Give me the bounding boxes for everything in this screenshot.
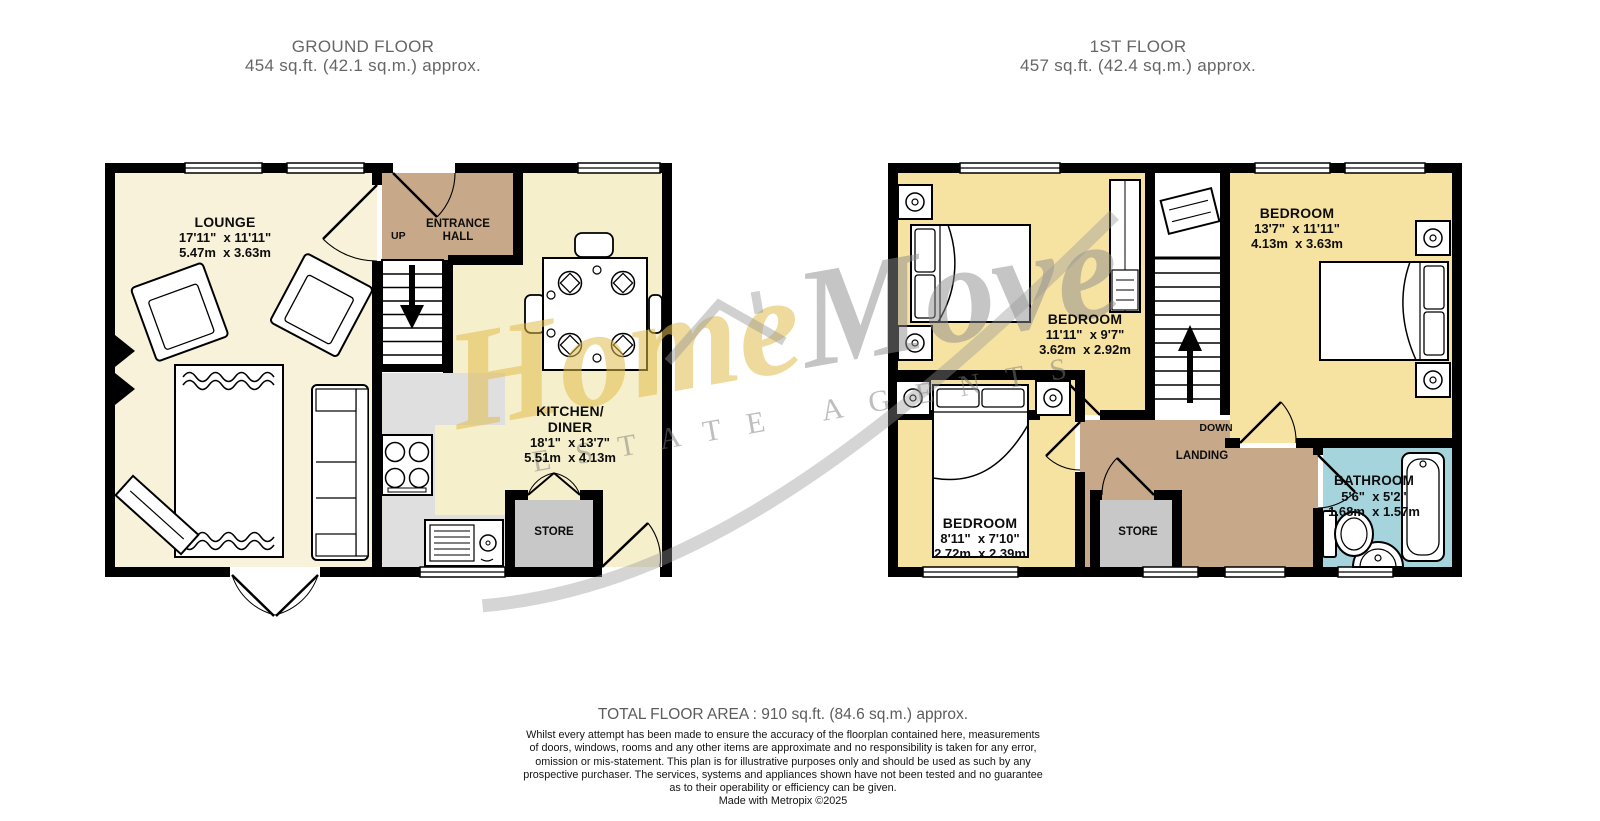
double-bed-icon (1320, 262, 1448, 360)
place-setting-icon (612, 272, 635, 295)
bedroom-small-dims-imperial: 8'11" x 7'10" (905, 531, 1055, 546)
sink-icon (425, 520, 503, 566)
kitchen-dims-metric: 5.51m x 4.13m (490, 450, 650, 465)
place-setting-icon (612, 334, 635, 357)
bedroom-main-dims-imperial: 13'7" x 11'11" (1217, 221, 1377, 236)
kitchen-line1: KITCHEN/ (490, 403, 650, 419)
bathroom-name: BATHROOM (1294, 473, 1454, 489)
nightstand-lamp-icon (1416, 221, 1450, 255)
french-door-opening (230, 567, 320, 577)
first-floor-plan: BEDROOM 13'7" x 11'11" 4.13m x 3.63m BED… (888, 163, 1462, 577)
metropix-credit: Made with Metropix ©2025 (403, 795, 1163, 808)
window (1225, 567, 1285, 577)
disclaimer-line: omission or mis-statement. This plan is … (403, 756, 1163, 769)
bedroom-small-dims-metric: 2.72m x 2.39m (905, 546, 1055, 561)
bedroom-main-label: BEDROOM 13'7" x 11'11" 4.13m x 3.63m (1217, 205, 1377, 251)
window (578, 163, 660, 173)
footer: TOTAL FLOOR AREA : 910 sq.ft. (84.6 sq.m… (403, 705, 1163, 809)
window (420, 567, 505, 577)
nightstand-lamp-icon (898, 326, 932, 360)
bedroom-mid-dims-imperial: 11'11" x 9'7" (1010, 327, 1160, 342)
disclaimer-line: Whilst every attempt has been made to en… (403, 729, 1163, 742)
french-doors (232, 575, 318, 616)
sofa-icon (312, 385, 368, 560)
first-floor-area-text: 457 sq.ft. (42.4 sq.m.) approx. (888, 56, 1388, 75)
up-label: UP (391, 230, 425, 242)
kitchen-door-opening (602, 567, 660, 577)
bedroom-small-label: BEDROOM 8'11" x 7'10" 2.72m x 2.39m (905, 515, 1055, 561)
disclaimer-line: of doors, windows, rooms and any other i… (403, 742, 1163, 755)
first-floor-title: 1ST FLOOR 457 sq.ft. (42.4 sq.m.) approx… (888, 37, 1388, 75)
lounge-name: LOUNGE (140, 214, 310, 230)
bedroom-mid-label: BEDROOM 11'11" x 9'7" 3.62m x 2.92m (1010, 311, 1160, 357)
total-floor-area: TOTAL FLOOR AREA : 910 sq.ft. (84.6 sq.m… (403, 705, 1163, 725)
place-setting-icon (559, 272, 582, 295)
bathroom-dims-metric: 1.68m x 1.57m (1294, 504, 1454, 519)
disclaimer-line: prospective purchaser. The services, sys… (403, 769, 1163, 782)
window (923, 567, 1018, 577)
nightstand-lamp-icon (1416, 363, 1450, 397)
first-store-label: STORE (1098, 526, 1178, 539)
kitchen-label: KITCHEN/ DINER 18'1" x 13'7" 5.51m x 4.1… (490, 403, 650, 465)
landing-label: LANDING (1152, 450, 1252, 463)
ground-floor-title: GROUND FLOOR 454 sq.ft. (42.1 sq.m.) app… (113, 37, 613, 75)
window (1338, 567, 1393, 577)
lounge-dims-imperial: 17'11" x 11'11" (140, 230, 310, 245)
ground-floor-area-text: 454 sq.ft. (42.1 sq.m.) approx. (113, 56, 613, 75)
lounge-dims-metric: 5.47m x 3.63m (140, 245, 310, 260)
bathroom-dims-imperial: 5'6" x 5'2" (1294, 489, 1454, 504)
ground-floor-plan: LOUNGE 17'11" x 11'11" 5.47m x 3.63m ENT… (105, 163, 672, 577)
nightstand-lamp-icon (1036, 381, 1070, 415)
lounge-label: LOUNGE 17'11" x 11'11" 5.47m x 3.63m (140, 214, 310, 260)
floorplan-page: { "ground_floor": { "title": "GROUND FLO… (0, 0, 1600, 821)
dining-chair-icon (575, 233, 613, 257)
ground-store-label: STORE (514, 526, 594, 539)
nightstand-lamp-icon (896, 381, 930, 415)
entrance-hall-floor (382, 173, 513, 260)
ground-floor-title-text: GROUND FLOOR (113, 37, 613, 56)
window (185, 163, 262, 173)
nightstand-lamp-icon (898, 185, 932, 219)
bedroom-small-name: BEDROOM (905, 515, 1055, 531)
disclaimer-line: as to their operability or efficiency ca… (403, 782, 1163, 795)
bathroom-label: BATHROOM 5'6" x 5'2" 1.68m x 1.57m (1294, 473, 1454, 519)
window (1143, 567, 1198, 577)
bedroom-main-dims-metric: 4.13m x 3.63m (1217, 236, 1377, 251)
bedroom-mid-dims-metric: 3.62m x 2.92m (1010, 342, 1160, 357)
kitchen-dims-imperial: 18'1" x 13'7" (490, 435, 650, 450)
window (287, 163, 364, 173)
place-setting-icon (559, 334, 582, 357)
window (1345, 163, 1425, 173)
wardrobe-icon (1110, 180, 1140, 312)
stairs-up (382, 260, 443, 368)
down-label: DOWN (1186, 422, 1246, 434)
front-door-opening (393, 163, 455, 173)
bedroom-main-name: BEDROOM (1217, 205, 1377, 221)
window (960, 163, 1060, 173)
window (1255, 163, 1330, 173)
bedroom-mid-name: BEDROOM (1010, 311, 1160, 327)
double-bed-icon (911, 225, 1030, 322)
dining-chair-icon (649, 295, 662, 333)
first-floor-title-text: 1ST FLOOR (888, 37, 1388, 56)
hob-icon (382, 435, 432, 495)
kitchen-line2: DINER (490, 419, 650, 435)
